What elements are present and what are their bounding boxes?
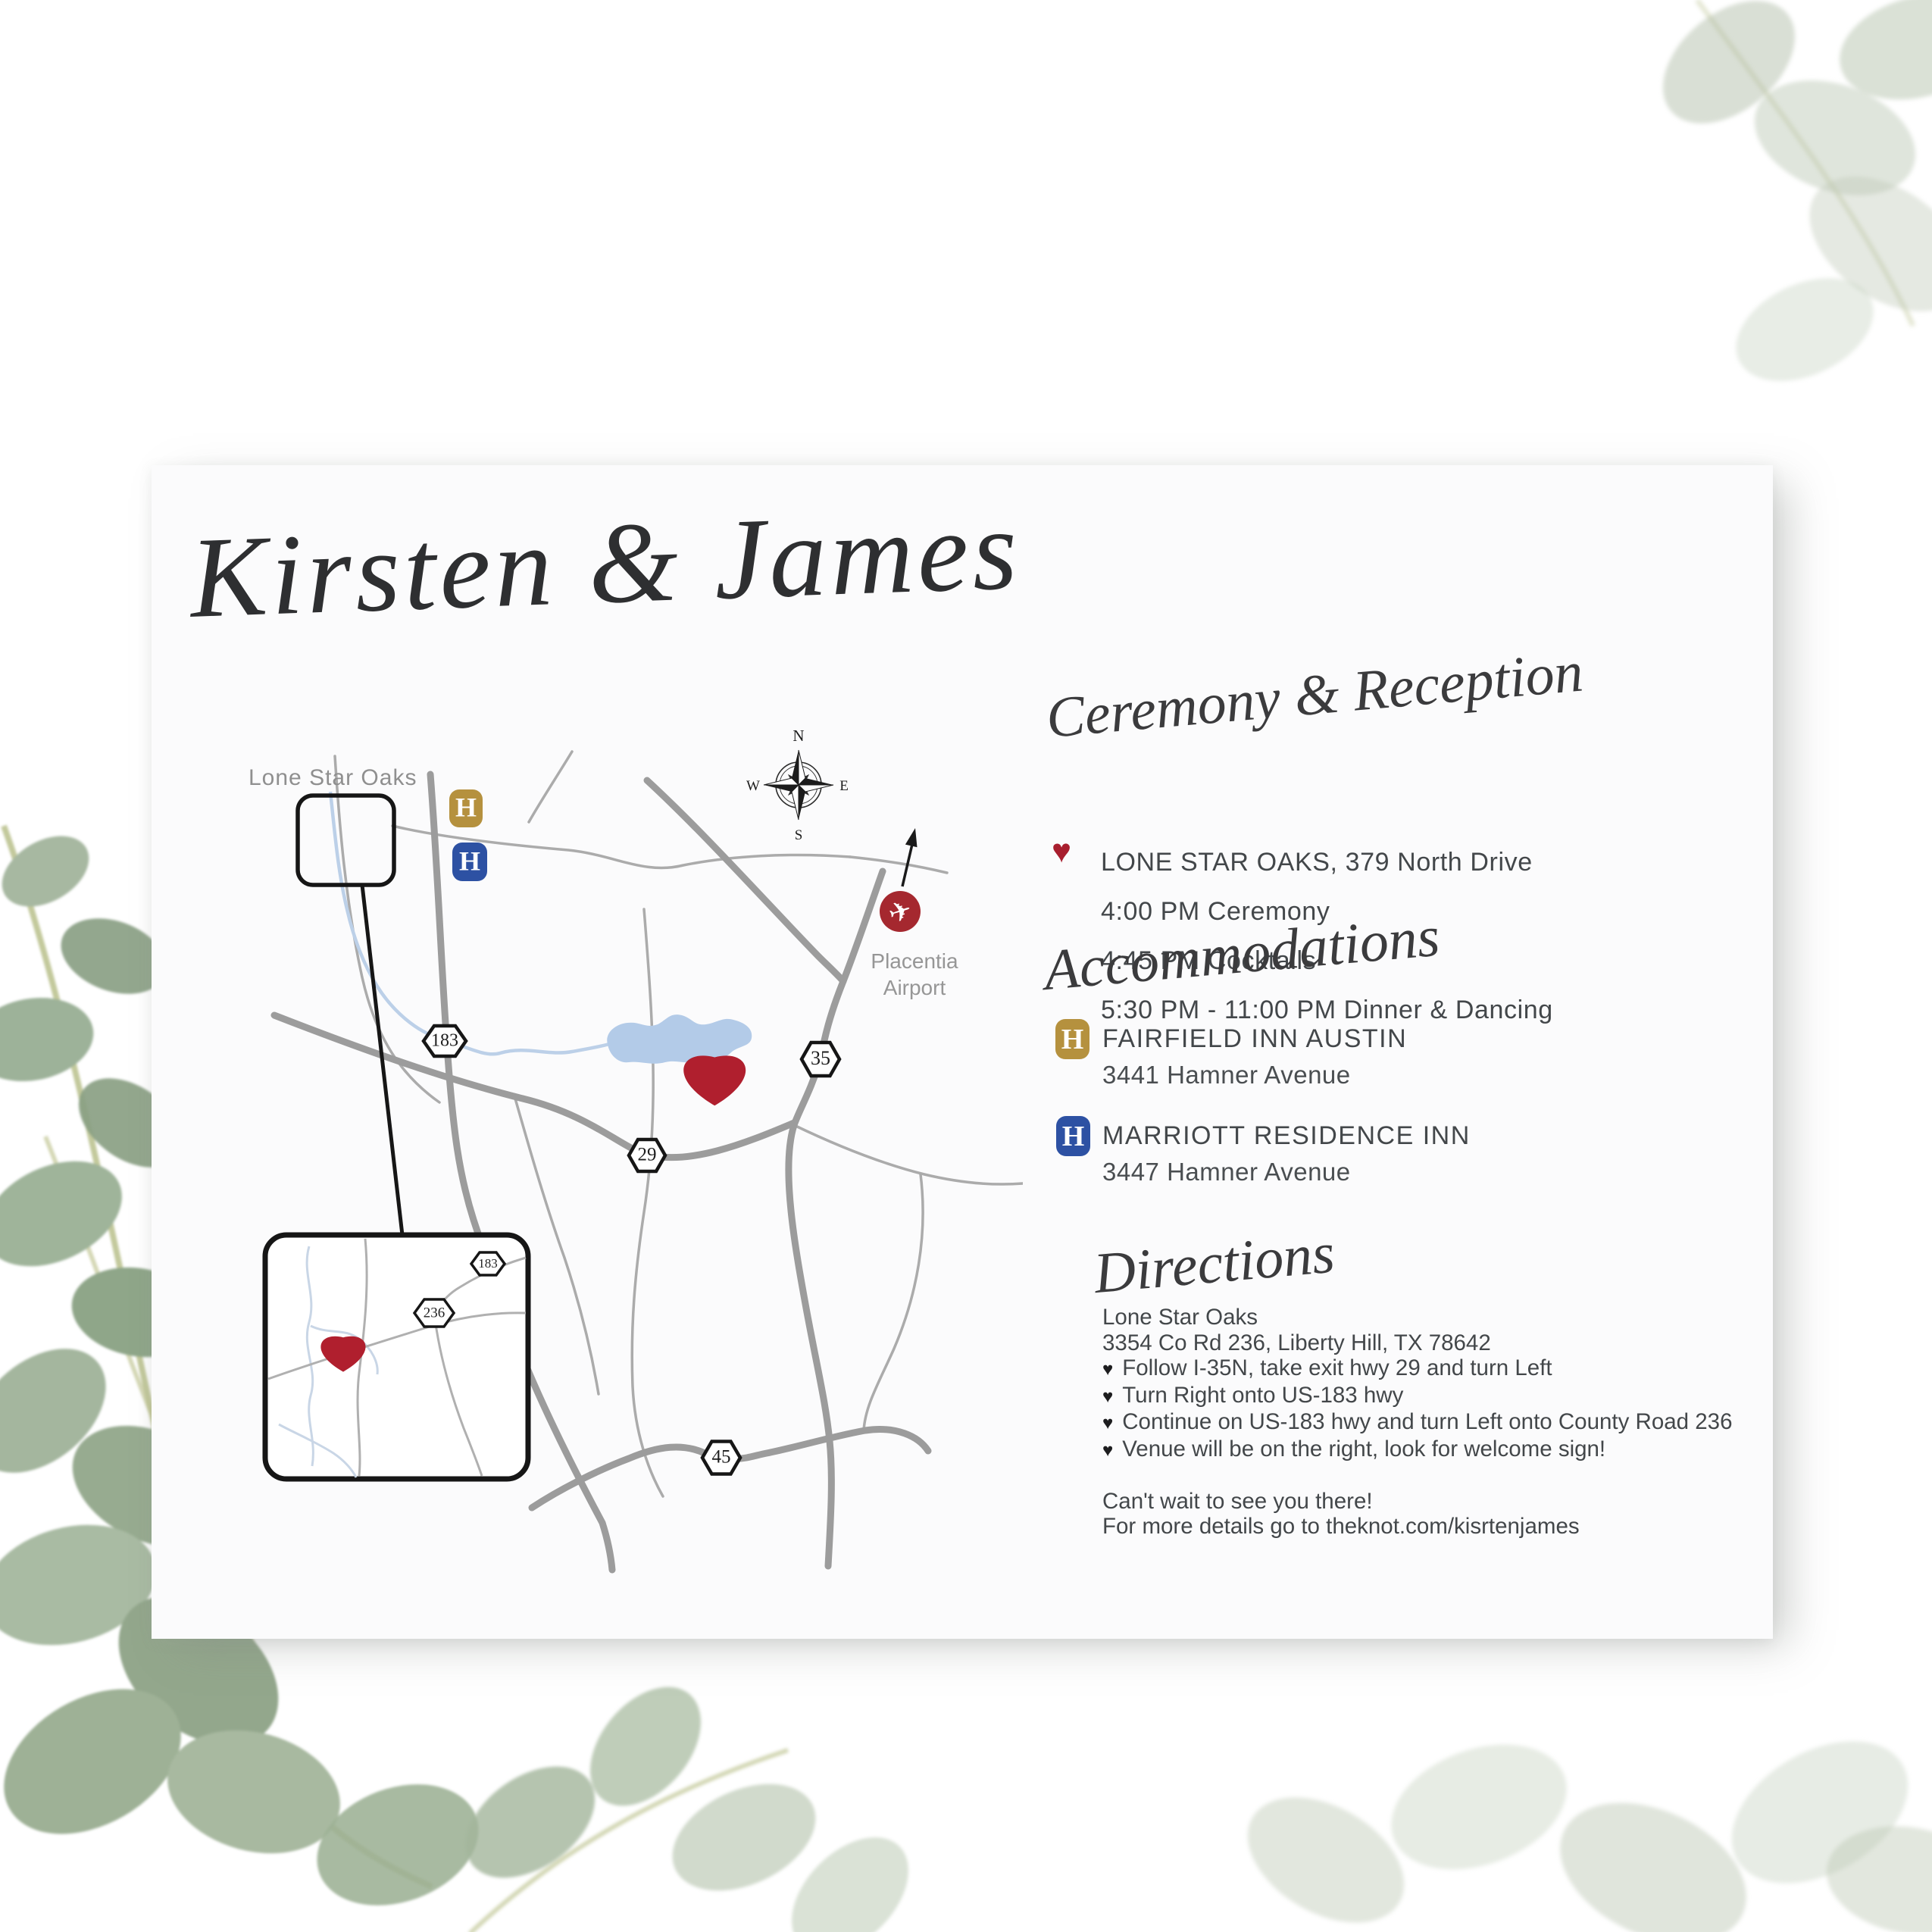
directions-venue-name: Lone Star Oaks <box>1102 1305 1732 1330</box>
eucalyptus-sprig-bottom-right <box>1226 1712 1932 1932</box>
ceremony-venue-line: LONE STAR OAKS, 379 North Drive <box>1101 838 1553 887</box>
svg-text:35: 35 <box>811 1047 830 1069</box>
hotel-name-marriott: MARRIOTT RESIDENCE INN <box>1102 1121 1471 1151</box>
shield-183: 183 <box>424 1026 466 1056</box>
eucalyptus-sprig-top-right <box>1640 0 1932 402</box>
directions-step-text: Turn Right onto US-183 hwy <box>1122 1383 1403 1408</box>
directions-step: ♥ Continue on US-183 hwy and turn Left o… <box>1102 1409 1732 1436</box>
directions-closing: Can't wait to see you there! <box>1102 1489 1732 1515</box>
svg-text:E: E <box>839 778 849 794</box>
venue-map-label: Lone Star Oaks <box>249 765 417 790</box>
svg-text:183: 183 <box>431 1031 458 1051</box>
svg-text:Placentia: Placentia <box>871 949 958 973</box>
hotel-marker-blue: H <box>452 843 487 881</box>
shield-29: 29 <box>629 1140 665 1171</box>
svg-text:H: H <box>455 792 477 822</box>
inset-map: 183 236 <box>265 1235 528 1479</box>
hotel-address-marriott: 3447 Hamner Avenue <box>1102 1158 1351 1186</box>
hotel-badge-blue: H <box>1056 1116 1090 1156</box>
hotel-name-fairfield: FAIRFIELD INN AUSTIN <box>1102 1024 1407 1054</box>
svg-text:S: S <box>795 827 803 843</box>
directions-step: ♥ Venue will be on the right, look for w… <box>1102 1436 1732 1464</box>
spacer <box>1102 1463 1732 1489</box>
svg-text:N: N <box>792 727 804 745</box>
shield-45: 45 <box>702 1442 740 1474</box>
svg-text:W: W <box>746 778 760 794</box>
heart-bullet-icon: ♥ <box>1102 1411 1113 1436</box>
svg-text:236: 236 <box>424 1305 445 1321</box>
venue-heart-icon <box>683 1055 746 1105</box>
directions-step: ♥ Follow I-35N, take exit hwy 29 and tur… <box>1102 1355 1732 1383</box>
directions-details: Lone Star Oaks 3354 Co Rd 236, Liberty H… <box>1102 1305 1732 1540</box>
north-arrow-icon <box>905 828 918 847</box>
heart-bullet-icon: ♥ <box>1102 1357 1113 1383</box>
airport-marker: ✈ Placentia Airport <box>871 828 958 999</box>
inset-shield-236: 236 <box>414 1299 454 1327</box>
hotel-marker-gold: H <box>449 789 483 827</box>
hotel-address-fairfield: 3441 Hamner Avenue <box>1102 1061 1351 1089</box>
directions-step-text: Venue will be on the right, look for wel… <box>1122 1436 1605 1462</box>
inset-shield-183: 183 <box>471 1252 505 1275</box>
eucalyptus-sprig-bottom-center <box>445 1666 930 1932</box>
shield-35: 35 <box>802 1043 839 1076</box>
ceremony-heart-icon: ♥ <box>1052 835 1071 868</box>
heart-bullet-icon: ♥ <box>1102 1384 1113 1410</box>
svg-text:45: 45 <box>712 1447 731 1468</box>
heart-bullet-icon: ♥ <box>1102 1438 1113 1464</box>
directions-step-text: Follow I-35N, take exit hwy 29 and turn … <box>1122 1355 1552 1381</box>
svg-text:29: 29 <box>638 1145 657 1165</box>
directions-website: For more details go to theknot.com/kisrt… <box>1102 1514 1732 1540</box>
svg-text:183: 183 <box>478 1256 498 1271</box>
hotel-badge-gold: H <box>1055 1019 1089 1059</box>
directions-step: ♥ Turn Right onto US-183 hwy <box>1102 1383 1732 1410</box>
svg-text:H: H <box>459 846 480 876</box>
compass-rose-icon: N S W E <box>746 727 849 843</box>
product-photo-background: Kirsten & James <box>0 0 1932 1932</box>
directions-step-text: Continue on US-183 hwy and turn Left ont… <box>1122 1409 1732 1435</box>
wedding-venue-map: 183 236 183 35 29 45 H <box>189 720 1023 1606</box>
svg-text:Airport: Airport <box>883 976 946 999</box>
directions-venue-address: 3354 Co Rd 236, Liberty Hill, TX 78642 <box>1102 1330 1732 1356</box>
